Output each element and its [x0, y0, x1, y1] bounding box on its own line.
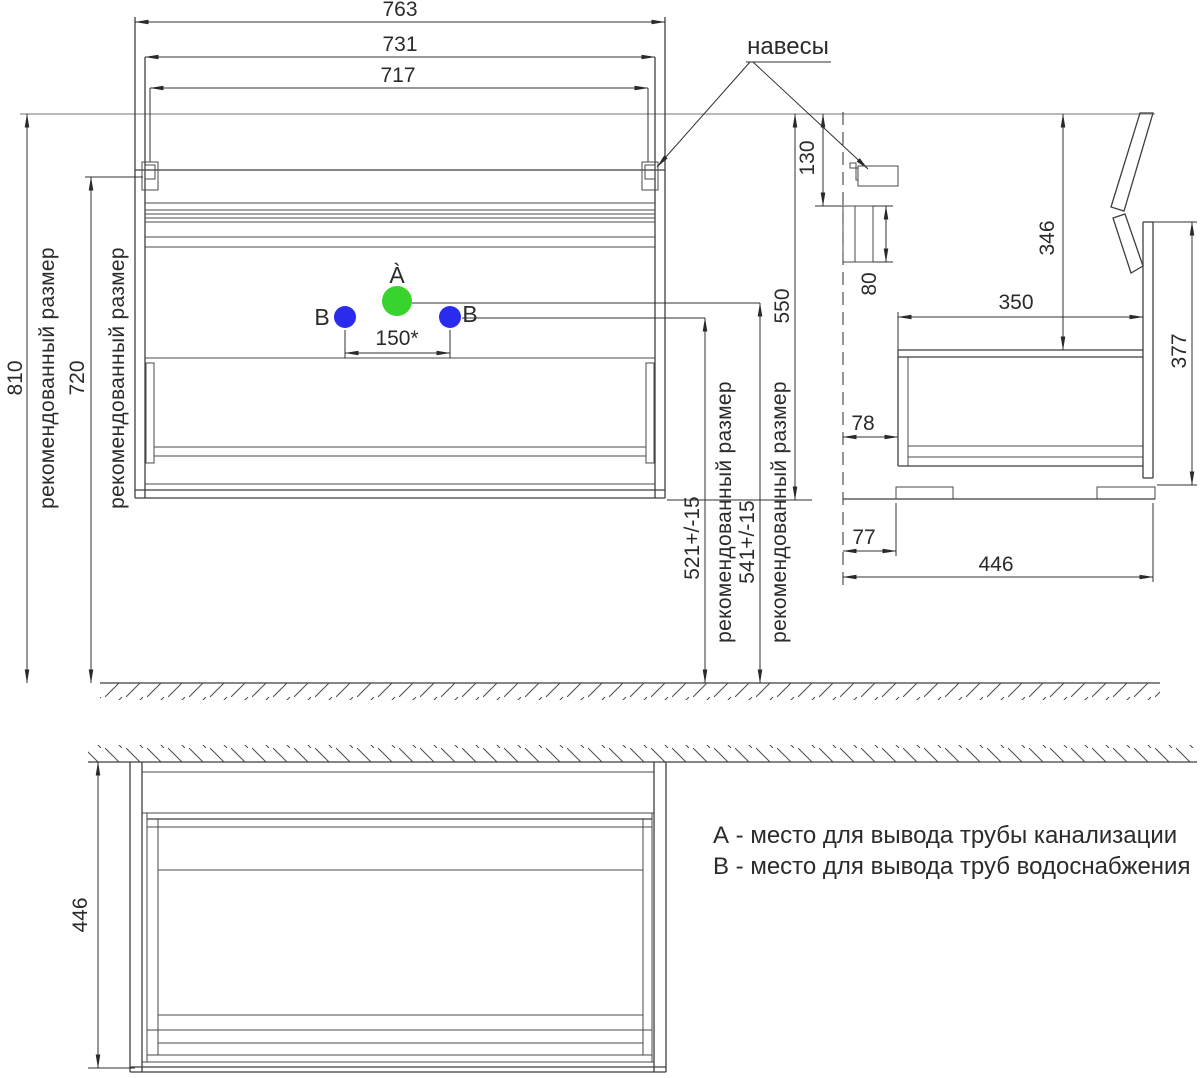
dim-521-note: рекомендованный размер: [713, 381, 736, 643]
dim-height-810: 810 рекомендованный размер: [4, 114, 59, 683]
dim-130: 130: [796, 114, 843, 206]
dim-height-720: 720 рекомендованный размер: [66, 177, 143, 683]
dim-height-541: 541+/-15 рекомендованный размер: [736, 303, 791, 683]
dim-377-label: 377: [1168, 333, 1191, 368]
dim-541-label: 541+/-15: [736, 500, 759, 584]
dim-350-label: 350: [998, 291, 1033, 314]
dim-446-plan-label: 446: [69, 897, 92, 932]
legend-line-b: В - место для вывода труб водоснабжения: [713, 853, 1190, 880]
dim-810-label: 810: [4, 360, 27, 395]
vanity-installation-drawing: À B B 763 731 717 150*: [0, 0, 1200, 1078]
side-feet: [843, 487, 1155, 499]
plan-view: [88, 745, 1197, 1072]
point-b-right-label: B: [462, 301, 477, 327]
side-view: [843, 112, 1155, 588]
dim-446-side: 446: [843, 503, 1153, 582]
dim-80-label: 80: [858, 272, 881, 295]
legend: А - место для вывода трубы канализации В…: [713, 822, 1190, 880]
dim-width-717: 717: [150, 64, 648, 88]
dim-717-label: 717: [380, 64, 415, 87]
technical-drawing-page: À B B 763 731 717 150*: [0, 0, 1200, 1078]
front-view: À B B: [135, 17, 760, 498]
dim-541-note: рекомендованный размер: [768, 381, 791, 643]
point-b-left-label: B: [314, 304, 329, 330]
dim-346: 346: [1036, 114, 1063, 350]
dim-80: 80: [858, 206, 893, 296]
dim-77-label: 77: [852, 526, 875, 549]
dim-78: 78: [843, 412, 898, 437]
dim-130-label: 130: [796, 140, 819, 175]
wall-rail: [843, 206, 873, 262]
dim-521-label: 521+/-15: [681, 496, 704, 580]
dim-731-label: 731: [382, 33, 417, 56]
hangers-callout-label: навесы: [747, 33, 829, 60]
dim-446-side-label: 446: [978, 553, 1013, 576]
dim-150-label: 150*: [375, 327, 418, 350]
dim-78-label: 78: [851, 412, 874, 435]
point-b-right-water-outlet: [439, 306, 461, 328]
dim-350: 350: [898, 291, 1143, 350]
legend-line-a: А - место для вывода трубы канализации: [713, 822, 1177, 849]
basin-profile: [1111, 113, 1153, 273]
dim-550-label: 550: [771, 288, 794, 323]
dim-346-label: 346: [1036, 220, 1059, 255]
floor: [100, 683, 1160, 700]
dim-width-763: 763: [135, 0, 665, 22]
dim-width-731: 731: [145, 33, 655, 57]
dim-446-plan: 446: [69, 762, 135, 1068]
top-groove-band: [145, 203, 655, 247]
dim-810-note: рекомендованный размер: [36, 247, 59, 509]
dim-77: 77: [843, 503, 896, 556]
dim-763-label: 763: [382, 0, 417, 21]
side-front-panel: [1143, 222, 1153, 478]
point-a-label: À: [389, 262, 405, 288]
point-a-drain-outlet: [382, 286, 412, 316]
dim-720-note: рекомендованный размер: [106, 247, 129, 509]
side-carcass: [898, 350, 1143, 466]
side-hanger-bracket: [850, 163, 898, 186]
lower-drawer: [145, 358, 655, 484]
dim-377: 377: [1153, 222, 1197, 485]
dim-720-label: 720: [66, 360, 89, 395]
wall-hatch: [88, 745, 1197, 762]
dim-150: 150*: [345, 327, 450, 358]
point-b-left-water-outlet: [334, 306, 356, 328]
hangers-callout: навесы: [657, 33, 868, 169]
